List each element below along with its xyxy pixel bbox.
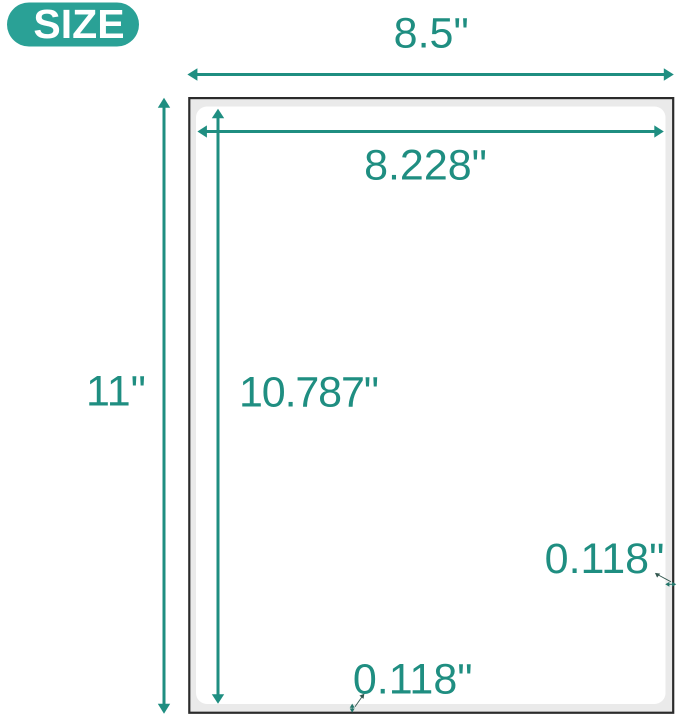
svg-text:8.228": 8.228" <box>364 141 487 189</box>
svg-text:SIZE: SIZE <box>33 1 124 47</box>
svg-text:10.787": 10.787" <box>239 368 379 416</box>
svg-text:8.5": 8.5" <box>394 10 469 58</box>
svg-text:0.118": 0.118" <box>353 655 473 703</box>
svg-text:11": 11" <box>86 368 146 416</box>
svg-text:0.118": 0.118" <box>545 535 665 583</box>
